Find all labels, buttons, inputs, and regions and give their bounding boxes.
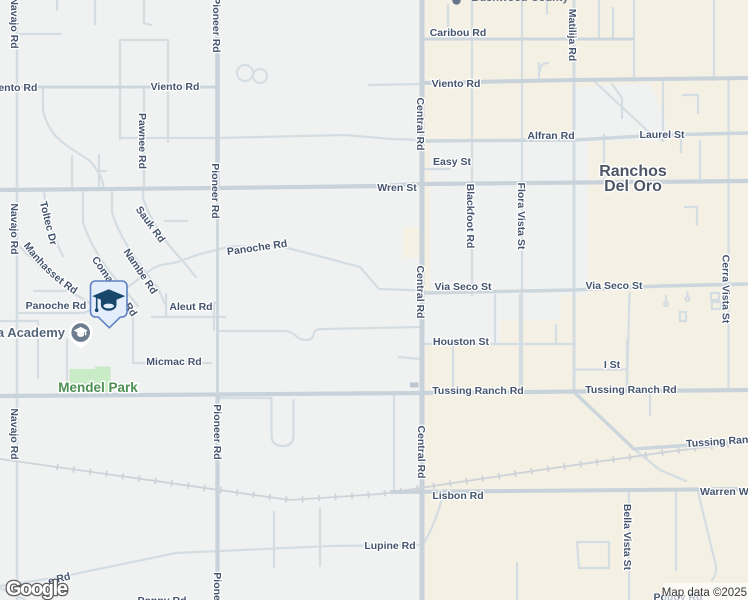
svg-text:Pioneer Rd: Pioneer Rd <box>210 0 222 53</box>
svg-text:Caribou Rd: Caribou Rd <box>430 27 487 39</box>
svg-text:Navajo Rd: Navajo Rd <box>8 408 20 459</box>
svg-text:Lupine Rd: Lupine Rd <box>364 540 415 552</box>
svg-text:Alfran Rd: Alfran Rd <box>527 130 574 142</box>
svg-text:Flora Vista St: Flora Vista St <box>515 183 527 250</box>
svg-text:Warren Way: Warren Way <box>700 486 748 498</box>
svg-text:Navajo Rd: Navajo Rd <box>8 203 20 254</box>
svg-text:Lisbon Rd: Lisbon Rd <box>432 490 483 502</box>
svg-text:Pioneer Rd: Pioneer Rd <box>211 404 223 459</box>
svg-text:Poppy Rd: Poppy Rd <box>138 595 187 600</box>
svg-text:Aleut Rd: Aleut Rd <box>169 301 212 313</box>
svg-text:Del Oro: Del Oro <box>604 178 662 195</box>
svg-text:Tussing Ranch Rd: Tussing Ranch Rd <box>585 384 676 396</box>
svg-text:Central Rd: Central Rd <box>415 425 427 478</box>
svg-text:Pioneer Rd: Pioneer Rd <box>211 572 223 600</box>
svg-text:Viento Rd: Viento Rd <box>432 78 481 90</box>
svg-text:Panoche Rd: Panoche Rd <box>26 300 87 312</box>
svg-text:Blackfoot Rd: Blackfoot Rd <box>464 184 476 249</box>
svg-text:Easy St: Easy St <box>433 156 471 168</box>
svg-text:Mendel Park: Mendel Park <box>58 380 138 395</box>
svg-text:Pioneer Rd: Pioneer Rd <box>209 163 221 218</box>
svg-text:Central Rd: Central Rd <box>414 97 426 150</box>
svg-text:I St: I St <box>604 359 621 371</box>
svg-text:Cerra Vista St: Cerra Vista St <box>720 255 732 324</box>
svg-text:Pawnee Rd: Pawnee Rd <box>136 113 148 169</box>
svg-text:Via Seco St: Via Seco St <box>585 280 643 292</box>
svg-text:Bella Vista St: Bella Vista St <box>621 504 633 571</box>
svg-text:Micmac Rd: Micmac Rd <box>146 356 201 368</box>
svg-text:Wren St: Wren St <box>377 182 417 194</box>
svg-text:Matilija Rd: Matilija Rd <box>566 9 578 62</box>
svg-text:Viento Rd: Viento Rd <box>151 81 200 93</box>
svg-text:Laurel St: Laurel St <box>640 129 685 141</box>
svg-text:Via Seco St: Via Seco St <box>434 281 492 293</box>
svg-text:Tussing Ranch Rd: Tussing Ranch Rd <box>432 385 523 397</box>
svg-text:Central Rd: Central Rd <box>414 265 426 318</box>
svg-text:a Academy: a Academy <box>0 325 66 340</box>
svg-text:Viento Rd: Viento Rd <box>0 82 37 94</box>
svg-text:Bushwood County: Bushwood County <box>471 0 569 4</box>
svg-text:Map data ©2025: Map data ©2025 <box>662 587 747 599</box>
svg-text:Houston St: Houston St <box>433 336 489 348</box>
svg-text:Google: Google <box>6 578 68 600</box>
svg-text:Navajo Rd: Navajo Rd <box>8 0 20 49</box>
